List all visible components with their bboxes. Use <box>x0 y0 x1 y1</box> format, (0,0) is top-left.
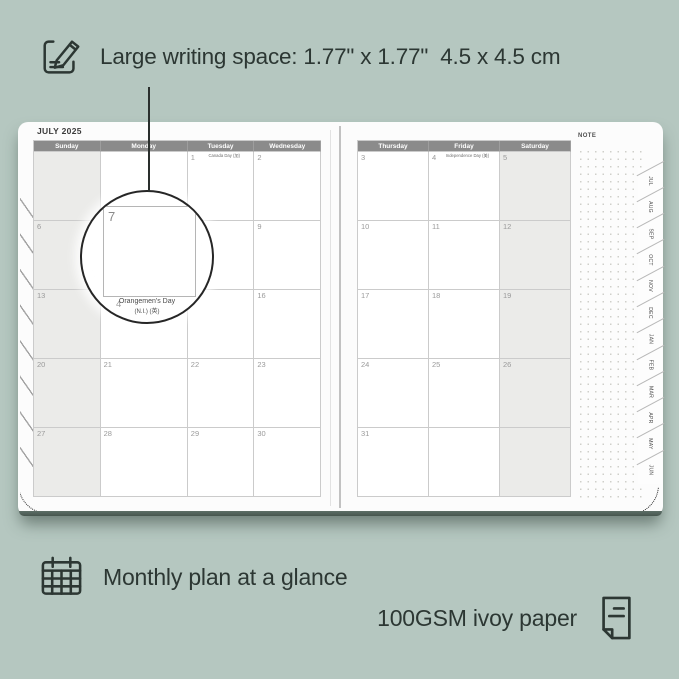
product-image: Large writing space: 1.77" x 1.77" 4.5 x… <box>0 0 679 679</box>
day-header: Sunday <box>34 141 101 152</box>
calendar-cell: 5 <box>500 152 571 221</box>
holiday-label: Independence Day (美) <box>446 154 490 158</box>
calendar-cell: 4Independence Day (美) <box>429 152 500 221</box>
day-number: 28 <box>104 430 112 438</box>
day-header: Thursday <box>358 141 429 152</box>
day-number: 10 <box>361 223 369 231</box>
bottom-left-text: Monthly plan at a glance <box>103 564 348 591</box>
paper-sheet-icon <box>595 592 637 644</box>
calendar-cell: 26 <box>500 359 571 428</box>
month-tab-apr: APR <box>638 405 662 431</box>
month-tab-label: JUL <box>647 176 652 186</box>
note-pencil-icon <box>38 33 84 81</box>
day-header: Saturday <box>500 141 571 152</box>
bottom-left-annotation: Monthly plan at a glance <box>38 553 348 601</box>
calendar-cell: 22 <box>188 359 255 428</box>
calendar-cell: 25 <box>429 359 500 428</box>
calendar-cell: 23 <box>254 359 321 428</box>
day-number: 29 <box>191 430 199 438</box>
calendar-cell: 9 <box>254 221 321 290</box>
day-number: 26 <box>503 361 511 369</box>
month-tab-label: DEC <box>647 307 652 319</box>
magnified-cell: 7 <box>103 206 196 297</box>
calendar-right-page: ThursdayFridaySaturday34Independence Day… <box>357 140 571 497</box>
magnifier-circle: 7 4 Orangemen's Day (N.I.) (英) <box>80 190 214 324</box>
day-number: 12 <box>503 223 511 231</box>
day-header: Friday <box>429 141 500 152</box>
calendar-left-page: SundayMondayTuesdayWednesday1Canada Day … <box>33 140 321 497</box>
day-number: 17 <box>361 292 369 300</box>
calendar-cell: 17 <box>358 290 429 359</box>
day-number: 19 <box>503 292 511 300</box>
calendar-cell: 28 <box>101 428 188 497</box>
day-number: 24 <box>361 361 369 369</box>
day-header: Wednesday <box>254 141 321 152</box>
month-tab-jun: JUN <box>638 457 662 483</box>
day-number: 5 <box>503 154 507 162</box>
calendar-cell: 21 <box>101 359 188 428</box>
day-number: 31 <box>361 430 369 438</box>
calendar-cell: 2 <box>254 152 321 221</box>
day-number: 11 <box>432 223 440 231</box>
top-annotation: Large writing space: 1.77" x 1.77" 4.5 x… <box>38 33 560 81</box>
top-annotation-text: Large writing space: 1.77" x 1.77" 4.5 x… <box>100 44 560 70</box>
day-number: 3 <box>361 154 365 162</box>
day-number: 20 <box>37 361 45 369</box>
calendar-cell: 30 <box>254 428 321 497</box>
month-tab-label: MAY <box>647 438 652 449</box>
day-number: 25 <box>432 361 440 369</box>
calendar-cell: 19 <box>500 290 571 359</box>
callout-line <box>148 87 150 192</box>
calendar-cell: 1Canada Day (加) <box>188 152 255 221</box>
day-number: 6 <box>37 223 41 231</box>
page-edge-line <box>330 130 331 506</box>
day-number: 18 <box>432 292 440 300</box>
month-tabs: JULAUGSEPOCTNOVDECJANFEBMARAPRMAYJUN <box>638 168 662 484</box>
note-label: NOTE <box>578 133 596 139</box>
calendar-cell: 29 <box>188 428 255 497</box>
planner-spread: JULY 2025 SundayMondayTuesdayWednesday1C… <box>18 122 663 516</box>
month-tab-label: OCT <box>647 254 652 266</box>
bottom-right-text: 100GSM ivoy paper <box>377 605 577 632</box>
month-title: JULY 2025 <box>37 126 82 136</box>
month-tab-label: SEP <box>647 228 652 239</box>
month-tab-label: JAN <box>647 334 652 344</box>
magnified-holiday: Orangemen's Day (N.I.) (英) <box>82 298 212 315</box>
month-tab-label: NOV <box>647 280 652 292</box>
day-number: 4 <box>432 154 436 162</box>
holiday-label: Canada Day (加) <box>204 154 245 158</box>
month-tab-label: APR <box>647 412 652 423</box>
calendar-cell: 20 <box>34 359 101 428</box>
day-number: 30 <box>257 430 265 438</box>
calendar-cell <box>500 428 571 497</box>
calendar-cell <box>34 152 101 221</box>
bottom-right-annotation: 100GSM ivoy paper <box>377 592 637 644</box>
month-tab-sep: SEP <box>638 221 662 247</box>
calendar-cell: 10 <box>358 221 429 290</box>
day-number: 22 <box>191 361 199 369</box>
spine <box>339 126 341 508</box>
calendar-cell: 16 <box>254 290 321 359</box>
day-number: 1 <box>191 154 195 162</box>
month-tab-label: FEB <box>647 360 652 371</box>
month-tab-label: AUG <box>647 202 652 214</box>
month-tab-label: JUN <box>647 465 652 476</box>
calendar-cell: 11 <box>429 221 500 290</box>
month-tab-label: MAR <box>647 385 652 397</box>
calendar-cell: 3 <box>358 152 429 221</box>
day-number: 13 <box>37 292 45 300</box>
day-number: 23 <box>257 361 265 369</box>
calendar-cell: 18 <box>429 290 500 359</box>
day-header: Tuesday <box>188 141 255 152</box>
calendar-cell: 24 <box>358 359 429 428</box>
calendar-cell: 31 <box>358 428 429 497</box>
day-number: 21 <box>104 361 112 369</box>
page-block-edge <box>19 511 662 516</box>
magnified-day-number: 7 <box>108 209 115 224</box>
day-number: 16 <box>257 292 265 300</box>
day-header: Monday <box>101 141 188 152</box>
calendar-cell <box>429 428 500 497</box>
day-number: 27 <box>37 430 45 438</box>
calendar-grid-icon <box>38 553 85 601</box>
calendar-cell: 12 <box>500 221 571 290</box>
day-number: 9 <box>257 223 261 231</box>
day-number: 2 <box>257 154 261 162</box>
note-dot-grid <box>577 148 643 500</box>
